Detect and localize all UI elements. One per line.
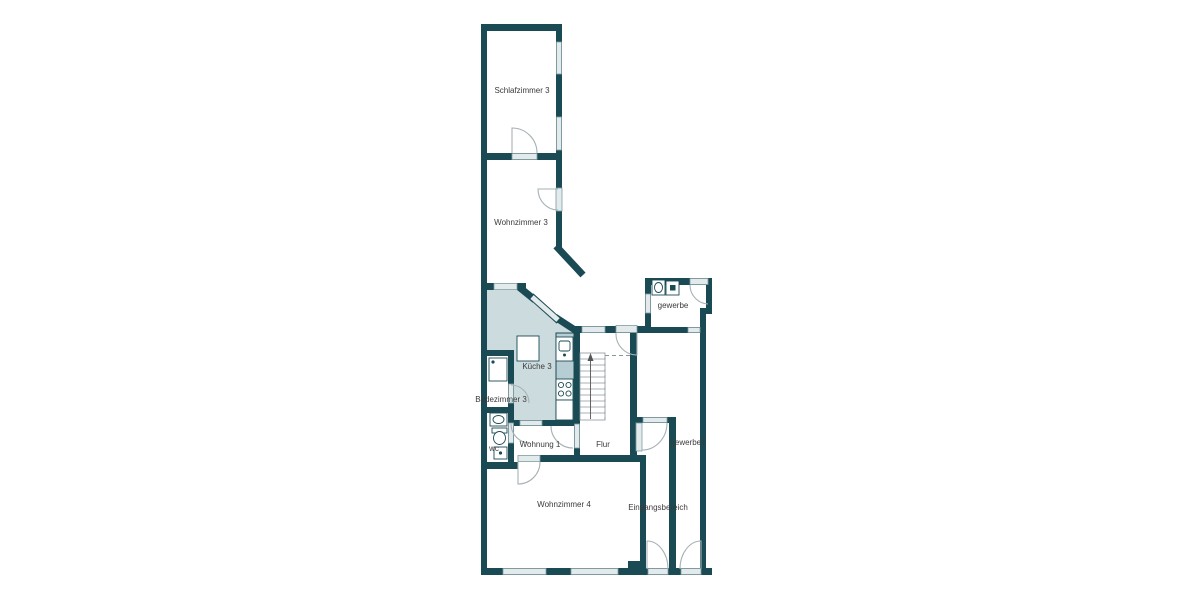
room-label-kueche3: Küche 3 [522,362,552,371]
window-gewerbe [646,294,651,313]
room-label-wc: wc [488,444,499,453]
room-label-flur: Flur [596,440,610,449]
door-threshold-gewerbe [690,279,708,285]
room-label-gewerbe: gewerbe [658,301,689,310]
door-arc-eingang [647,541,668,569]
dishwasher-icon [556,400,573,420]
window-schlafzimmer-2 [557,117,562,150]
window-schlafzimmer-1 [557,42,562,74]
window-wohnzimmer4-2 [571,569,618,575]
door-threshold-schlafzimmer [512,154,537,160]
toilet-icon [494,432,506,445]
door-arc-schlafzimmer [512,128,537,153]
room-label-wohnzimmer4: Wohnzimmer 4 [537,500,591,509]
door-arc-gewerbe1 [642,423,667,450]
room-label-schlafzimmer3: Schlafzimmer 3 [494,86,550,95]
door-opening-wohnzimmer3 [556,188,562,211]
door-arc-wohnzimmer4 [518,462,540,484]
door-threshold-stairhall [616,326,637,333]
room-label-badezimmer3: Badezimmer 3 [475,395,527,404]
door-arc-wohnzimmer3 [538,189,558,210]
room-label-wohnzimmer3: Wohnzimmer 3 [494,218,548,227]
door-opening-flur [575,424,580,448]
door-arc-gewerbe [690,285,708,304]
window-wohnzimmer4-1 [503,569,546,575]
door-opening-gewerbe1 [643,418,667,423]
kitchen-cupboard-icon [517,336,539,361]
floor-plan: Schlafzimmer 3 Wohnzimmer 3 Küche 3 Bade… [0,0,1200,600]
window-stairhall [582,327,605,333]
passage-kueche-wohnung1 [520,421,542,426]
door-leaf-gewerbe1 [636,423,642,451]
opening-gewerbe-gewerbe1 [688,328,700,333]
door-threshold-gewerbe1-eingang [681,569,701,575]
door-threshold-eingang [648,569,668,575]
passage-wohnzimmer3-kueche [494,284,517,290]
room-label-wohnung1: Wohnung 1 [520,440,561,449]
room-label-eingangsbereich: Eingangsbereich [628,503,688,512]
door-threshold-wohnzimmer4 [518,456,540,462]
floor-plan-canvas: Schlafzimmer 3 Wohnzimmer 3 Küche 3 Bade… [0,0,1200,600]
door-arc-gewerbe1-eingang [680,541,701,569]
room-label-gewerbe1: gewerbe1 [670,438,706,447]
stove-icon [556,379,573,400]
stairs-icon [580,353,630,420]
